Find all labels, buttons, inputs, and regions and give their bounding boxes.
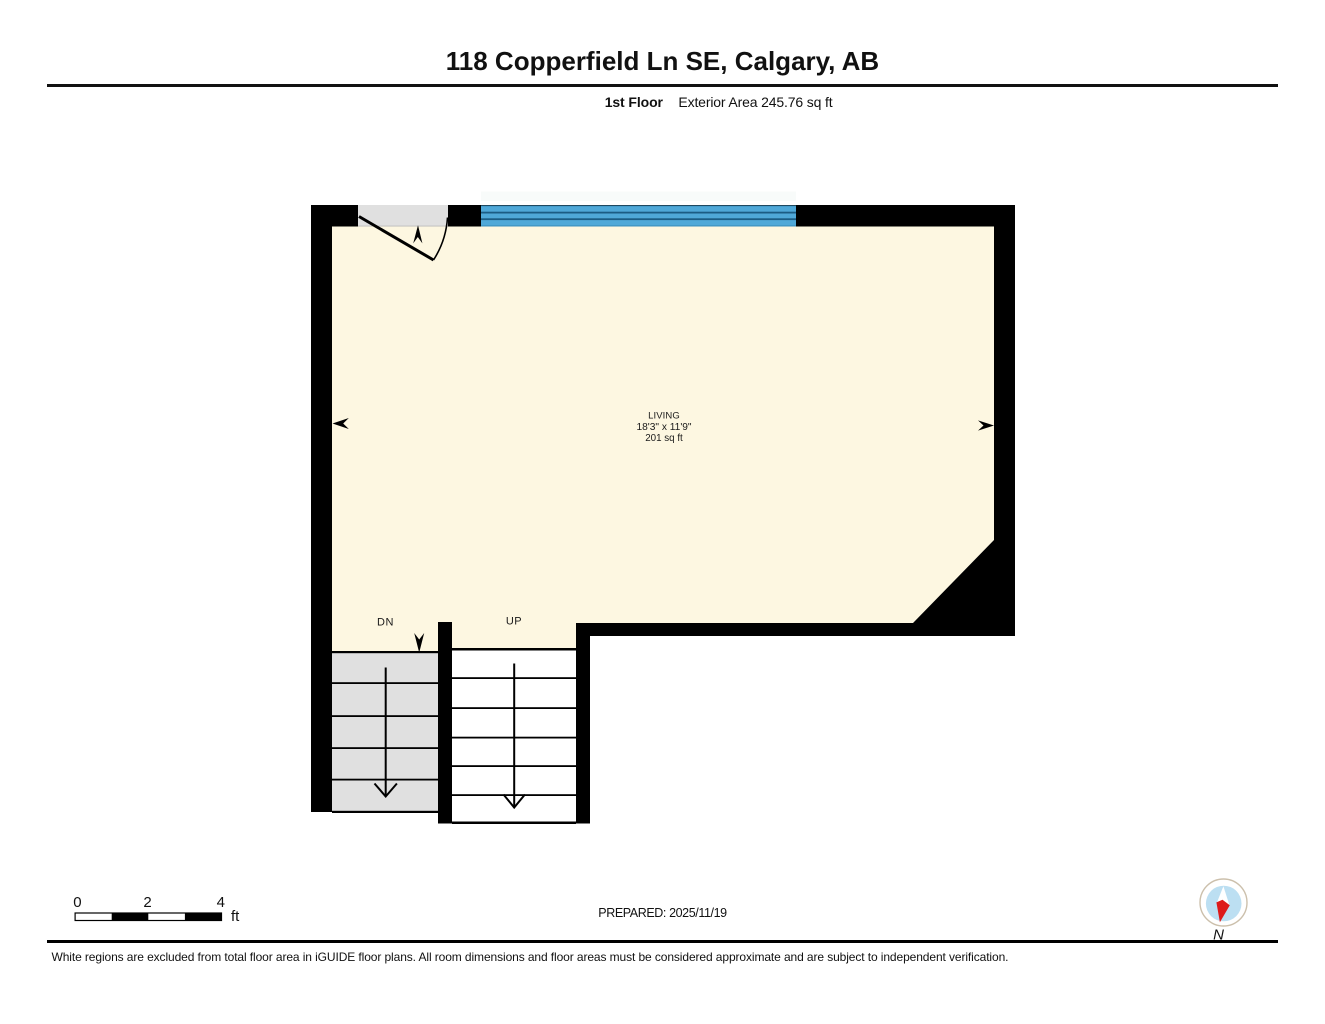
svg-text:18'3" x 11'9": 18'3" x 11'9" <box>636 422 691 433</box>
svg-text:LIVING: LIVING <box>648 411 680 422</box>
svg-text:201 sq ft: 201 sq ft <box>645 433 683 444</box>
svg-text:UP: UP <box>506 616 522 628</box>
svg-text:DN: DN <box>377 617 394 629</box>
